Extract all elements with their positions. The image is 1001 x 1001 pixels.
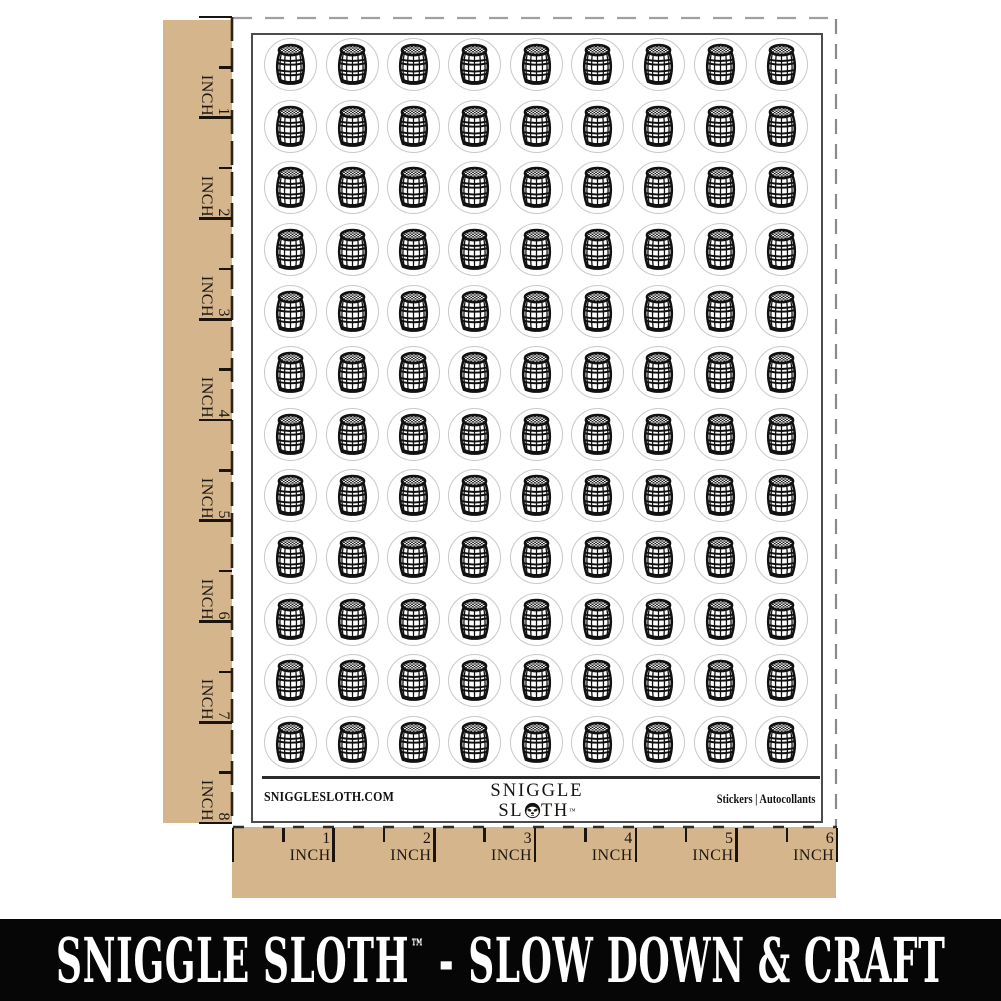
wine-barrel-icon	[390, 472, 437, 519]
sticker-wine-barrel	[510, 223, 563, 276]
ruler-unit: INCH	[198, 457, 215, 519]
wine-barrel-icon	[267, 103, 314, 150]
sticker-wine-barrel	[510, 654, 563, 707]
sticker-wine-barrel	[510, 100, 563, 153]
wine-barrel-icon	[390, 534, 437, 581]
sticker-sheet-product-photo: 1INCH2INCH3INCH4INCH5INCH6INCH7INCH8INCH…	[0, 0, 1001, 1001]
wine-barrel-icon	[451, 411, 498, 458]
wine-barrel-icon	[267, 719, 314, 766]
sticker-wine-barrel	[632, 223, 685, 276]
wine-barrel-icon	[451, 103, 498, 150]
wine-barrel-icon	[574, 411, 621, 458]
wine-barrel-icon	[635, 411, 682, 458]
wine-barrel-icon	[390, 411, 437, 458]
ruler-label-1-inch: 1INCH	[198, 54, 232, 116]
sticker-wine-barrel	[571, 469, 624, 522]
wine-barrel-icon	[451, 349, 498, 396]
wine-barrel-icon	[635, 164, 682, 211]
ruler-unit: INCH	[198, 255, 215, 317]
brand-banner: SNIGGLE SLOTH™-SLOW DOWN & CRAFT	[0, 919, 1001, 1001]
wine-barrel-icon	[451, 41, 498, 88]
sticker-wine-barrel	[632, 716, 685, 769]
wine-barrel-icon	[267, 411, 314, 458]
brand-banner-text: SNIGGLE SLOTH™-SLOW DOWN & CRAFT	[56, 924, 945, 997]
wine-barrel-icon	[758, 226, 805, 273]
wine-barrel-icon	[390, 41, 437, 88]
wine-barrel-icon	[574, 596, 621, 643]
ruler-unit: INCH	[369, 847, 431, 864]
sticker-wine-barrel	[510, 161, 563, 214]
wine-barrel-icon	[390, 226, 437, 273]
sticker-wine-barrel	[510, 593, 563, 646]
sticker-wine-barrel	[694, 654, 747, 707]
wine-barrel-icon	[758, 596, 805, 643]
sticker-wine-barrel	[571, 408, 624, 461]
sticker-wine-barrel	[755, 408, 808, 461]
wine-barrel-icon	[267, 472, 314, 519]
sticker-wine-barrel	[632, 593, 685, 646]
sloth-face-icon	[524, 802, 541, 819]
sticker-wine-barrel	[448, 346, 501, 399]
ruler-number: 3	[470, 830, 532, 847]
wine-barrel-icon	[697, 288, 744, 335]
ruler-label-5-inch: 5INCH	[198, 457, 232, 519]
logo-trademark: ™	[569, 801, 576, 821]
wine-barrel-icon	[329, 719, 376, 766]
footer-divider-line	[262, 776, 820, 779]
ruler-label-7-inch: 7INCH	[198, 658, 232, 720]
ruler-label-2-inch: 2INCH	[369, 830, 431, 864]
sticker-wine-barrel	[694, 593, 747, 646]
wine-barrel-icon	[697, 103, 744, 150]
sticker-wine-barrel	[326, 593, 379, 646]
sticker-wine-barrel	[694, 531, 747, 584]
wine-barrel-icon	[451, 164, 498, 211]
sticker-wine-barrel	[387, 346, 440, 399]
wine-barrel-icon	[758, 719, 805, 766]
sticker-wine-barrel	[632, 100, 685, 153]
sticker-wine-barrel	[571, 285, 624, 338]
sticker-wine-barrel	[264, 469, 317, 522]
wine-barrel-icon	[635, 349, 682, 396]
wine-barrel-icon	[635, 226, 682, 273]
wine-barrel-icon	[758, 164, 805, 211]
sticker-wine-barrel	[326, 469, 379, 522]
sticker-wine-barrel	[264, 38, 317, 91]
sticker-wine-barrel	[694, 285, 747, 338]
sticker-wine-barrel	[571, 654, 624, 707]
sticker-wine-barrel	[264, 531, 317, 584]
banner-trademark: ™	[410, 933, 425, 962]
wine-barrel-icon	[267, 534, 314, 581]
wine-barrel-icon	[697, 349, 744, 396]
sticker-wine-barrel	[755, 285, 808, 338]
ruler-tick	[433, 828, 436, 862]
wine-barrel-icon	[697, 41, 744, 88]
sticker-wine-barrel	[571, 716, 624, 769]
wine-barrel-icon	[329, 596, 376, 643]
sticker-wine-barrel	[755, 223, 808, 276]
wine-barrel-icon	[758, 472, 805, 519]
wine-barrel-icon	[267, 349, 314, 396]
wine-barrel-icon	[267, 657, 314, 704]
wine-barrel-icon	[574, 41, 621, 88]
sticker-wine-barrel	[632, 285, 685, 338]
ruler-tick	[836, 828, 839, 862]
wine-barrel-icon	[574, 657, 621, 704]
sticker-wine-barrel	[510, 285, 563, 338]
wine-barrel-icon	[267, 164, 314, 211]
wine-barrel-icon	[697, 719, 744, 766]
sticker-wine-barrel	[632, 654, 685, 707]
sticker-wine-barrel	[571, 346, 624, 399]
sticker-wine-barrel	[755, 469, 808, 522]
wine-barrel-icon	[513, 657, 560, 704]
sticker-wine-barrel	[694, 161, 747, 214]
sticker-wine-barrel	[387, 531, 440, 584]
ruler-tick	[232, 828, 235, 862]
wine-barrel-icon	[758, 288, 805, 335]
sticker-wine-barrel	[326, 531, 379, 584]
sticker-wine-barrel	[387, 469, 440, 522]
sticker-wine-barrel	[448, 593, 501, 646]
wine-barrel-icon	[758, 534, 805, 581]
ruler-label-6-inch: 6INCH	[772, 830, 834, 864]
sticker-wine-barrel	[510, 531, 563, 584]
wine-barrel-icon	[513, 41, 560, 88]
wine-barrel-icon	[574, 226, 621, 273]
ruler-unit: INCH	[269, 847, 331, 864]
sticker-wine-barrel	[264, 593, 317, 646]
wine-barrel-icon	[451, 596, 498, 643]
sticker-wine-barrel	[632, 346, 685, 399]
wine-barrel-icon	[329, 103, 376, 150]
sticker-wine-barrel	[264, 161, 317, 214]
sticker-wine-barrel	[387, 100, 440, 153]
wine-barrel-icon	[390, 103, 437, 150]
sticker-wine-barrel	[571, 593, 624, 646]
ruler-tick	[199, 419, 232, 422]
wine-barrel-icon	[697, 164, 744, 211]
wine-barrel-icon	[513, 719, 560, 766]
sticker-wine-barrel	[448, 285, 501, 338]
wine-barrel-icon	[390, 657, 437, 704]
wine-barrel-icon	[513, 164, 560, 211]
sticker-wine-barrel	[326, 38, 379, 91]
ruler-tick	[199, 217, 232, 220]
wine-barrel-icon	[390, 164, 437, 211]
wine-barrel-icon	[574, 349, 621, 396]
ruler-label-5-inch: 5INCH	[672, 830, 734, 864]
wine-barrel-icon	[697, 472, 744, 519]
sticker-wine-barrel	[632, 38, 685, 91]
wine-barrel-icon	[697, 657, 744, 704]
sticker-wine-barrel	[571, 223, 624, 276]
sticker-wine-barrel	[326, 654, 379, 707]
sticker-wine-barrel	[448, 469, 501, 522]
wine-barrel-icon	[329, 288, 376, 335]
ruler-unit: INCH	[198, 155, 215, 217]
wine-barrel-icon	[390, 596, 437, 643]
sticker-wine-barrel	[326, 100, 379, 153]
ruler-number: 7	[215, 658, 232, 720]
sticker-wine-barrel	[755, 38, 808, 91]
wine-barrel-icon	[635, 472, 682, 519]
sticker-wine-barrel	[264, 716, 317, 769]
sticker-wine-barrel	[694, 346, 747, 399]
wine-barrel-icon	[267, 226, 314, 273]
sticker-wine-barrel	[448, 38, 501, 91]
sticker-wine-barrel	[448, 654, 501, 707]
ruler-label-8-inch: 8INCH	[198, 759, 232, 821]
sticker-wine-barrel	[755, 593, 808, 646]
banner-separator: -	[425, 924, 468, 997]
ruler-number: 1	[215, 54, 232, 116]
wine-barrel-icon	[697, 534, 744, 581]
sticker-wine-barrel	[387, 654, 440, 707]
ruler-tick	[332, 828, 335, 862]
ruler-number: 8	[215, 759, 232, 821]
ruler-number: 5	[215, 457, 232, 519]
ruler-number: 1	[269, 830, 331, 847]
wine-barrel-icon	[329, 472, 376, 519]
wine-barrel-icon	[697, 596, 744, 643]
wine-barrel-icon	[451, 657, 498, 704]
sticker-wine-barrel	[755, 716, 808, 769]
sticker-wine-barrel	[448, 531, 501, 584]
wine-barrel-icon	[635, 719, 682, 766]
sticker-wine-barrel	[694, 38, 747, 91]
sticker-wine-barrel	[264, 654, 317, 707]
wine-barrel-icon	[390, 349, 437, 396]
ruler-label-1-inch: 1INCH	[269, 830, 331, 864]
sticker-wine-barrel	[264, 408, 317, 461]
wine-barrel-icon	[513, 103, 560, 150]
sticker-wine-barrel	[264, 223, 317, 276]
wine-barrel-icon	[390, 719, 437, 766]
logo-sl: SL	[498, 801, 523, 821]
wine-barrel-icon	[758, 41, 805, 88]
wine-barrel-icon	[267, 288, 314, 335]
sticker-wine-barrel	[755, 531, 808, 584]
wine-barrel-icon	[513, 534, 560, 581]
ruler-number: 6	[772, 830, 834, 847]
wine-barrel-icon	[329, 226, 376, 273]
ruler-unit: INCH	[672, 847, 734, 864]
ruler-label-4-inch: 4INCH	[571, 830, 633, 864]
sticker-wine-barrel	[448, 161, 501, 214]
sticker-wine-barrel	[448, 100, 501, 153]
ruler-unit: INCH	[198, 558, 215, 620]
wine-barrel-icon	[513, 472, 560, 519]
ruler-label-3-inch: 3INCH	[470, 830, 532, 864]
wine-barrel-icon	[574, 288, 621, 335]
sticker-wine-barrel	[387, 593, 440, 646]
wine-barrel-icon	[513, 349, 560, 396]
ruler-number: 4	[215, 356, 232, 418]
wine-barrel-icon	[329, 41, 376, 88]
ruler-unit: INCH	[198, 658, 215, 720]
sticker-wine-barrel	[387, 161, 440, 214]
wine-barrel-icon	[267, 596, 314, 643]
sticker-sheet: SNIGGLESLOTH.COM SNIGGLE SL TH™ Stickers…	[251, 33, 823, 823]
ruler-label-2-inch: 2INCH	[198, 155, 232, 217]
wine-barrel-icon	[451, 288, 498, 335]
wine-barrel-icon	[451, 226, 498, 273]
sticker-wine-barrel	[387, 285, 440, 338]
wine-barrel-icon	[329, 164, 376, 211]
ruler-number: 6	[215, 558, 232, 620]
wine-barrel-icon	[635, 657, 682, 704]
wine-barrel-icon	[390, 288, 437, 335]
sticker-wine-barrel	[326, 346, 379, 399]
ruler-tick	[635, 828, 638, 862]
wine-barrel-icon	[758, 411, 805, 458]
sticker-wine-barrel	[755, 654, 808, 707]
ruler-unit: INCH	[470, 847, 532, 864]
ruler-unit: INCH	[198, 356, 215, 418]
wine-barrel-icon	[574, 472, 621, 519]
wine-barrel-icon	[329, 534, 376, 581]
sticker-wine-barrel	[632, 408, 685, 461]
sticker-wine-barrel	[387, 38, 440, 91]
sticker-wine-barrel	[264, 285, 317, 338]
wine-barrel-icon	[758, 657, 805, 704]
sticker-wine-barrel	[571, 531, 624, 584]
ruler-tick	[199, 620, 232, 623]
wine-barrel-icon	[635, 534, 682, 581]
product-type-label: Stickers | Autocollants	[716, 791, 815, 807]
sticker-wine-barrel	[632, 531, 685, 584]
wine-barrel-icon	[513, 411, 560, 458]
sticker-wine-barrel	[694, 716, 747, 769]
sticker-wine-barrel	[510, 346, 563, 399]
ruler-unit: INCH	[198, 759, 215, 821]
wine-barrel-icon	[635, 103, 682, 150]
ruler-tick	[735, 828, 738, 862]
ruler-tick	[199, 519, 232, 522]
wine-barrel-icon	[574, 719, 621, 766]
sticker-wine-barrel	[571, 38, 624, 91]
sticker-wine-barrel	[448, 408, 501, 461]
ruler-unit: INCH	[772, 847, 834, 864]
sticker-wine-barrel	[326, 285, 379, 338]
wine-barrel-icon	[574, 164, 621, 211]
sticker-wine-barrel	[632, 161, 685, 214]
ruler-number: 3	[215, 255, 232, 317]
sticker-wine-barrel	[326, 408, 379, 461]
ruler-tick	[199, 116, 232, 119]
sticker-wine-barrel	[571, 100, 624, 153]
banner-brand: SNIGGLE SLOTH	[56, 924, 409, 997]
sticker-wine-barrel	[694, 408, 747, 461]
sticker-wine-barrel	[694, 223, 747, 276]
ruler-tick	[199, 16, 232, 19]
wine-barrel-icon	[451, 719, 498, 766]
sticker-wine-barrel	[571, 161, 624, 214]
wine-barrel-icon	[513, 288, 560, 335]
wine-barrel-icon	[329, 411, 376, 458]
ruler-label-4-inch: 4INCH	[198, 356, 232, 418]
wine-barrel-icon	[329, 657, 376, 704]
ruler-number: 5	[672, 830, 734, 847]
sticker-wine-barrel	[632, 469, 685, 522]
logo-th: TH	[541, 801, 569, 821]
ruler-tick	[534, 828, 537, 862]
sticker-wine-barrel	[264, 100, 317, 153]
wine-barrel-icon	[697, 411, 744, 458]
ruler-number: 4	[571, 830, 633, 847]
sticker-wine-barrel	[510, 716, 563, 769]
wine-barrel-icon	[513, 596, 560, 643]
ruler-tick	[199, 822, 232, 825]
wine-barrel-icon	[758, 103, 805, 150]
ruler-tick	[199, 318, 232, 321]
sticker-wine-barrel	[326, 716, 379, 769]
sticker-wine-barrel	[448, 223, 501, 276]
sticker-wine-barrel	[264, 346, 317, 399]
wine-barrel-icon	[635, 596, 682, 643]
sticker-wine-barrel	[510, 38, 563, 91]
sticker-wine-barrel	[694, 100, 747, 153]
sticker-wine-barrel	[387, 223, 440, 276]
wine-barrel-icon	[697, 226, 744, 273]
ruler-label-6-inch: 6INCH	[198, 558, 232, 620]
sticker-wine-barrel	[387, 716, 440, 769]
wine-barrel-icon	[329, 349, 376, 396]
sticker-wine-barrel	[448, 716, 501, 769]
wine-barrel-icon	[451, 472, 498, 519]
sticker-wine-barrel	[755, 100, 808, 153]
ruler-tick	[199, 721, 232, 724]
wine-barrel-icon	[758, 349, 805, 396]
ruler-unit: INCH	[571, 847, 633, 864]
wine-barrel-icon	[635, 288, 682, 335]
sticker-wine-barrel	[387, 408, 440, 461]
ruler-unit: INCH	[198, 54, 215, 116]
sticker-wine-barrel	[510, 408, 563, 461]
sticker-wine-barrel	[510, 469, 563, 522]
wine-barrel-icon	[574, 103, 621, 150]
wine-barrel-icon	[451, 534, 498, 581]
sticker-wine-barrel	[326, 161, 379, 214]
banner-tagline: SLOW DOWN & CRAFT	[468, 924, 945, 997]
sticker-wine-barrel	[326, 223, 379, 276]
wine-barrel-icon	[635, 41, 682, 88]
wine-barrel-icon	[574, 534, 621, 581]
sticker-wine-barrel	[755, 161, 808, 214]
ruler-label-3-inch: 3INCH	[198, 255, 232, 317]
sticker-wine-barrel	[694, 469, 747, 522]
sticker-wine-barrel	[755, 346, 808, 399]
ruler-number: 2	[215, 155, 232, 217]
ruler-number: 2	[369, 830, 431, 847]
wine-barrel-icon	[513, 226, 560, 273]
wine-barrel-icon	[267, 41, 314, 88]
